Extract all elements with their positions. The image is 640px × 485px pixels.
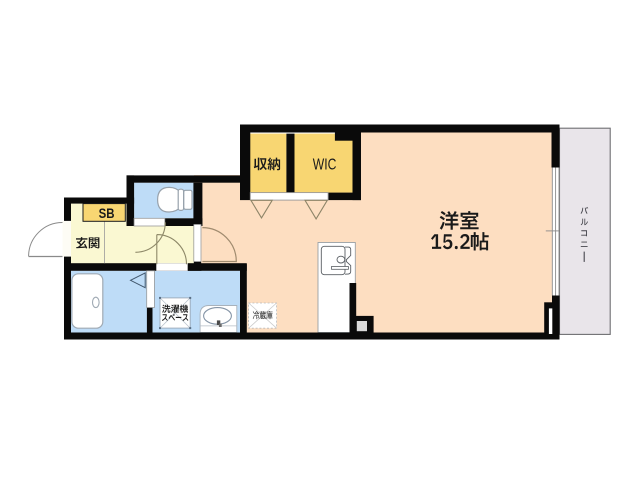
svg-text:WIC: WIC (313, 157, 337, 174)
svg-text:SB: SB (99, 205, 115, 221)
